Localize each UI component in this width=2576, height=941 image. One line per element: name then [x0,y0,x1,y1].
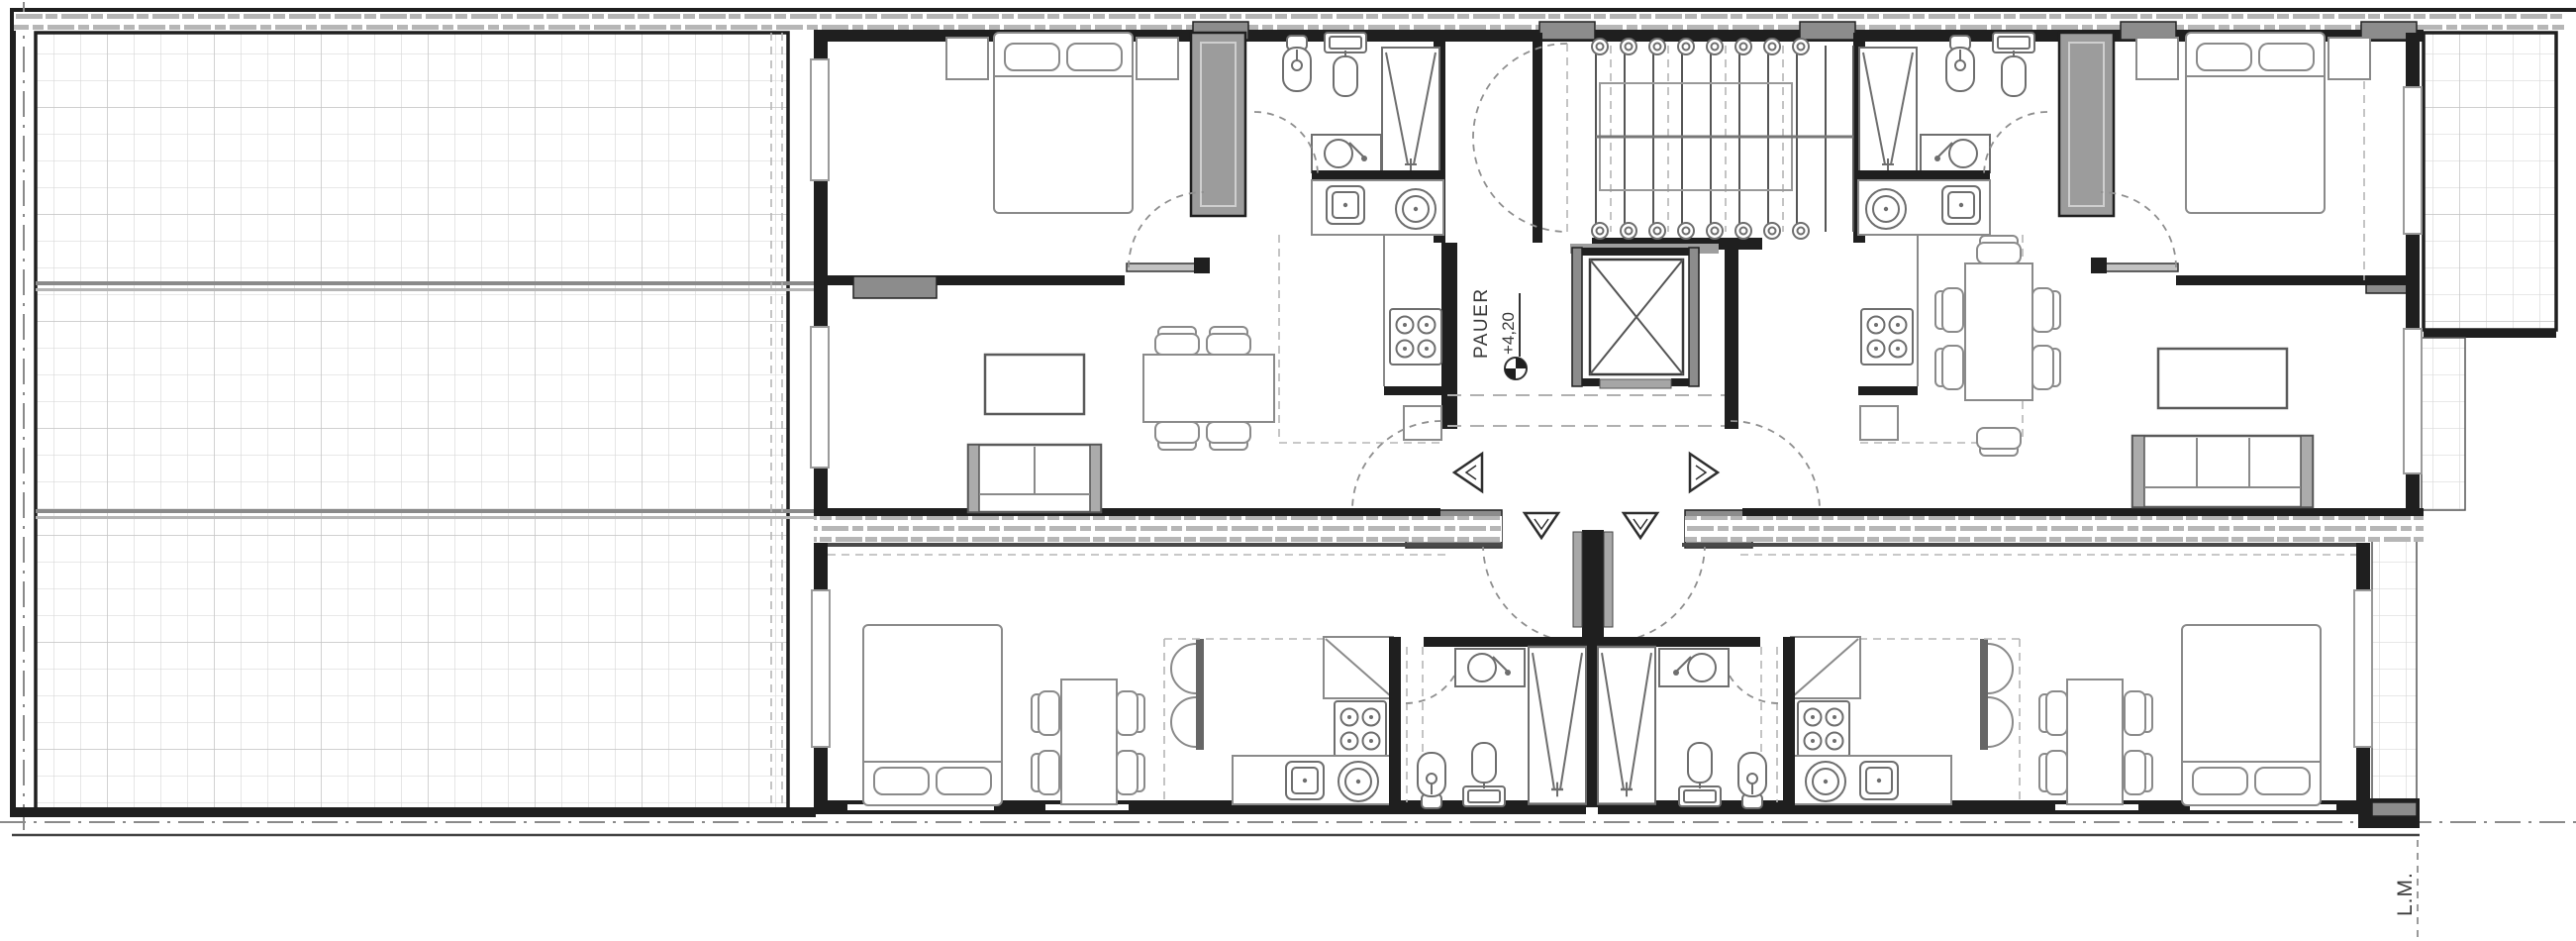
nightstand [2136,38,2178,79]
bidet [1946,36,1974,91]
door-marker-left-icon [1454,454,1482,491]
bidet [1283,36,1311,91]
dining-table [1143,355,1274,422]
mid-wall-band [814,508,2424,555]
bathroom-sink [1312,135,1381,172]
bidet [1418,753,1445,808]
nightstand [2328,38,2370,79]
chair [1207,422,1250,450]
kitchen-sink-round [1396,189,1436,229]
nightstand [946,38,988,79]
chair [1032,751,1059,794]
shower [1382,48,1439,176]
dining-table [1061,680,1117,804]
chair [1935,288,1963,332]
stairs [1473,39,1853,239]
kitchen-sink [1327,186,1364,224]
stove [1390,309,1441,365]
sofa [2132,436,2313,507]
shower [1859,48,1917,176]
wardrobe [2059,33,2114,216]
toilet [1325,33,1366,96]
stove [1335,701,1386,757]
chair [1117,691,1144,735]
chair [1977,236,2021,263]
terrace-left [10,33,816,817]
elevator [1572,248,1699,388]
apartment-lower-left [812,543,1586,814]
coffee-table [2158,349,2287,408]
chair [1935,346,1963,389]
door-marker-right-icon [1690,454,1718,491]
toilet [1463,743,1505,806]
nightstand [1137,38,1178,79]
coffee-table [985,355,1084,414]
door-marker-down-left-icon [1525,513,1558,538]
chair [1207,327,1250,355]
terrace-right [2366,33,2556,338]
chair [1977,428,2021,456]
bathroom-sink [1455,649,1525,686]
sofa [968,445,1101,512]
bathroom-sink [1921,135,1990,172]
apartment-upper-left [811,33,1443,515]
chair [2032,288,2060,332]
shower [1529,647,1586,804]
canvas: PAUER +4,20 [0,0,2576,941]
dining-table [1965,263,2032,400]
door-marker-down-right-icon [1624,513,1657,538]
bed [994,33,1133,213]
chair [1032,691,1059,735]
bar-stool [1171,697,1196,747]
stove [1861,309,1913,365]
floor-plan: PAUER +4,20 [0,0,2576,941]
apartment-lower-right [1598,543,2372,814]
bar-stool [1171,644,1196,693]
level-label: +4,20 [1499,312,1518,355]
property-line-label: L.M. [2394,872,2417,916]
kitchen-sink [1942,186,1980,224]
kitchen-sink [1286,762,1324,799]
chair [1155,422,1199,450]
stair-label: PAUER [1471,287,1492,359]
chair [2032,346,2060,389]
bed [2186,33,2325,213]
kitchen-sink-round [1338,762,1378,801]
toilet [1993,33,2034,96]
door-leaf [2101,263,2178,271]
bed [863,625,1002,805]
kitchen-sink-round [1866,189,1906,229]
chair [1117,751,1144,794]
apartment-upper-right [1731,33,2422,515]
wardrobe [1191,33,1245,216]
door-leaf [1127,263,1204,271]
chair [1155,327,1199,355]
